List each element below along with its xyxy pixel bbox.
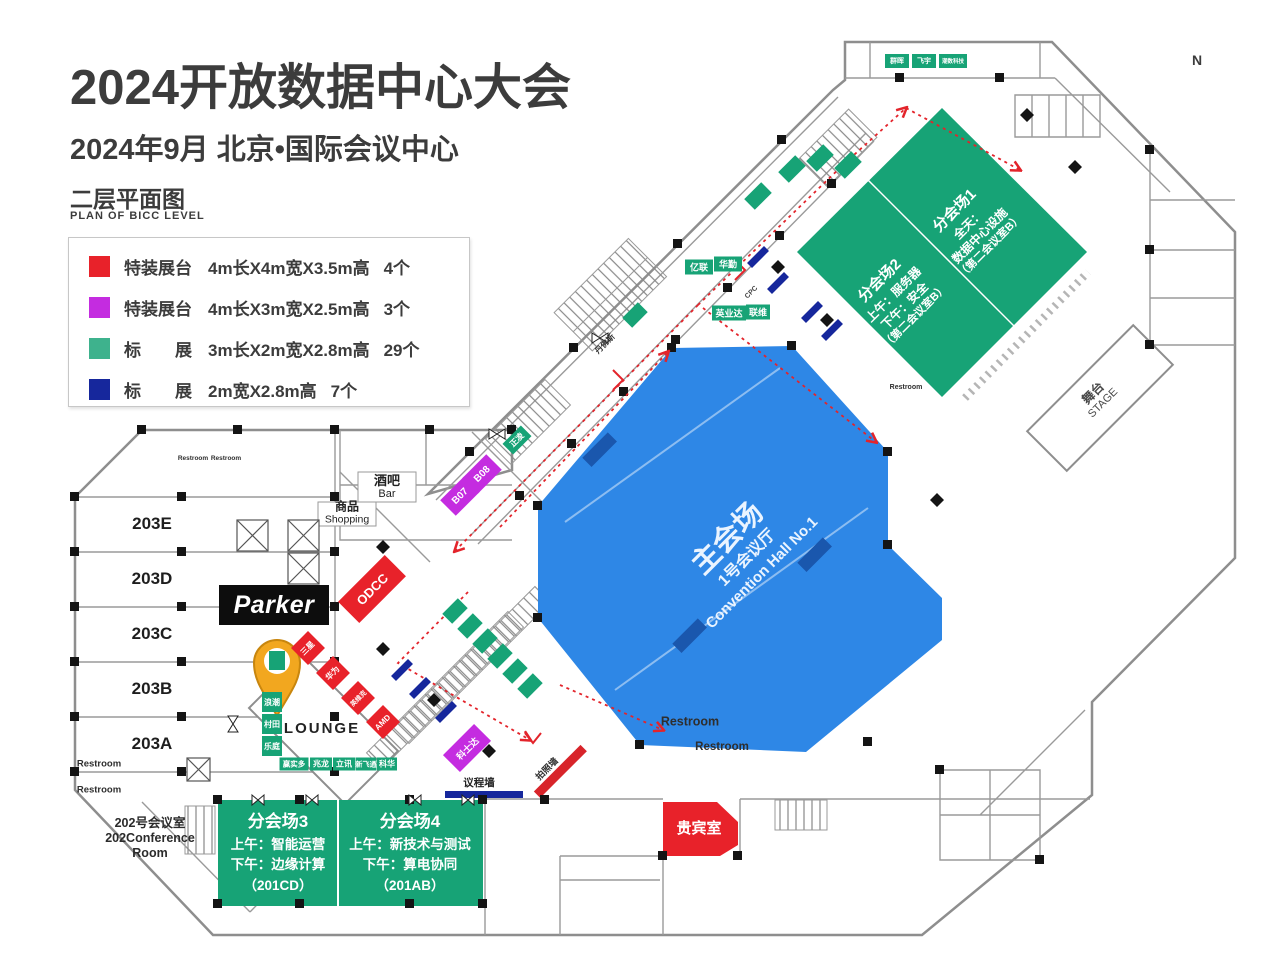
room-203E: 203E [132,514,172,534]
restroom-label: Restroom [211,455,241,463]
legend-item-green: 标 展 3m长X2m宽X2.8m高 29个 [89,327,469,368]
booth-label: 华勤 [719,258,737,271]
booth-label: 群晖 [890,56,904,66]
breakout3-label: 分会场3 上午：智能运营 下午：边缘计算 （201CD） [231,812,326,894]
bar-cn: 酒吧 [374,473,400,488]
legend-count: 3个 [384,295,410,320]
booth-xinfeitong: 新飞通 [356,758,377,771]
legend-count: 4个 [384,254,410,279]
legend-spec: 4m长X3m宽X2.5m高 [208,295,370,320]
booth-huaqin: 华勤 [714,257,742,272]
booth-leting: 乐庭 [262,736,282,756]
breakout3-line: 下午：边缘计算 [231,857,326,873]
legend-swatch-navy [89,379,110,400]
booth-label: 兆龙 [313,759,329,770]
room-203D: 203D [132,569,173,589]
restroom-label: Restroom [178,455,208,463]
booth-kehua: 科华 [377,758,397,771]
shopping-label: 商品 Shopping [325,500,369,527]
booth-lianwei: 联维 [746,305,770,320]
legend-spec: 2m宽X2.8m高 [208,377,317,402]
booth-label: 乐庭 [264,741,280,752]
booth-b07-label: B07 [450,486,471,507]
breakout3-title: 分会场3 [231,812,326,832]
restroom-label: Restroom [77,758,121,769]
legend-item-red: 特装展台 4m长X4m宽X3.5m高 4个 [89,245,469,286]
booth-langchao: 浪潮 [262,692,282,712]
page-title: 2024开放数据中心大会 [70,48,571,119]
shopping-cn: 商品 [325,500,369,514]
breakout3-line: 上午：智能运营 [231,837,326,853]
restroom-label: Restroom [77,784,121,795]
booth-label: 立讯 [336,759,352,770]
legend-label: 特装展台 [124,295,192,320]
legend-label: 标 展 [124,336,192,361]
lounge-label: LOUNGE [284,720,360,738]
shopping-en: Shopping [325,514,369,526]
booth-amd-label: AMD [373,712,392,731]
booth-luxshare: 立讯 [333,758,355,771]
legend-swatch-purple [89,297,110,318]
booth-inventec: 英业达 [712,306,746,321]
legend-swatch-red [89,256,110,277]
booth-huawei-label: 华为 [323,663,342,682]
booth-label: 潮数科技 [942,57,964,65]
legend-count: 7个 [331,377,357,402]
booth-chaoshu: 潮数科技 [939,54,967,68]
agenda-wall-label: 议程墙 [463,777,495,789]
legend: 特装展台 4m长X4m宽X3.5m高 4个 特装展台 4m长X3m宽X2.5m高… [68,237,470,407]
bar-en: Bar [374,488,400,501]
breakout3-line: （201CD） [231,878,326,894]
booth-label: 联维 [749,306,767,319]
booth-qunhui: 群晖 [885,54,909,68]
legend-item-navy: 标 展 2m宽X2.8m高 7个 [89,368,469,409]
legend-label: 特装展台 [124,254,192,279]
legend-item-purple: 特装展台 4m长X3m宽X2.5m高 3个 [89,286,469,327]
legend-label: 标 展 [124,377,192,402]
plan-subtitle: PLAN OF BICC LEVEL [70,210,205,222]
booth-label: 新飞通 [356,759,377,769]
conf202-line: 202号会议室 [105,816,195,831]
breakout4-line: 下午：算电协同 [349,857,471,873]
legend-spec: 3m长X2m宽X2.8m高 [208,336,370,361]
restroom-label: Restroom [890,384,923,392]
room-203B: 203B [132,679,173,699]
room-203C: 203C [132,624,173,644]
booth-label: 科华 [379,759,395,770]
booth-samsung-label: 三星 [298,638,317,657]
conf202-line: 202Conference [105,831,195,846]
booth-label: 亿联 [690,261,708,274]
booth-label: 赢实多 [283,759,306,770]
booth-feiyu: 飞宇 [912,54,936,68]
floor-plan: 2024开放数据中心大会 2024年9月 北京•国际会议中心 二层平面图 PLA… [0,0,1280,978]
conference-202-label: 202号会议室 202Conference Room [105,816,195,860]
booth-murata: 村田 [262,714,282,734]
breakout4-line: （201AB） [349,878,471,894]
legend-swatch-green [89,338,110,359]
booth-yingshiduo: 赢实多 [280,758,309,771]
page-subtitle: 2024年9月 北京•国际会议中心 [70,126,459,168]
conf202-line: Room [105,845,195,860]
vip-room-label: 贵宾室 [676,820,721,838]
parker-logo: Parker [219,585,329,625]
booth-envicool-label: 英维克 [348,688,369,709]
booth-label: 英业达 [715,307,742,320]
legend-spec: 4m长X4m宽X3.5m高 [208,254,370,279]
booth-zhaolong: 兆龙 [310,758,332,771]
booth-b08-label: B08 [472,464,493,485]
room-203A: 203A [132,734,173,754]
booth-label: 飞宇 [917,56,931,66]
legend-count: 29个 [384,336,420,361]
plan-title: 二层平面图 [70,180,185,214]
breakout4-label: 分会场4 上午：新技术与测试 下午：算电协同 （201AB） [349,812,471,894]
restroom-label: Restroom [661,715,719,730]
restroom-label: Restroom [695,741,749,755]
bar-label: 酒吧 Bar [374,473,400,501]
booth-label: 村田 [264,719,280,730]
breakout4-line: 上午：新技术与测试 [349,837,471,853]
north-indicator: N [1192,52,1202,68]
booth-yealink: 亿联 [685,260,713,275]
booth-label: 浪潮 [264,697,280,708]
breakout4-title: 分会场4 [349,812,471,832]
pin-booth [269,651,285,670]
